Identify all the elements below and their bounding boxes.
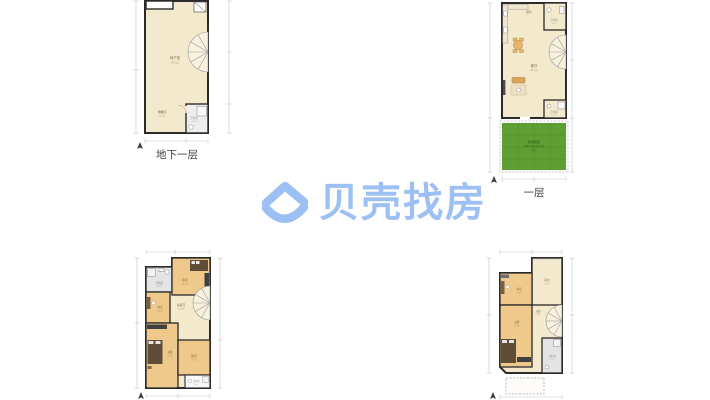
room-third-master	[500, 305, 532, 367]
room-label: 主卧	[514, 320, 520, 324]
room-first-bath-top	[544, 3, 566, 30]
north-compass-icon	[137, 142, 143, 149]
floorplan-third: 露台 9.6㎡ 书房 8.4㎡ 主卧 13.8㎡ 过道	[482, 245, 577, 400]
room-second-bath-top	[146, 267, 172, 292]
floorplan-second: 卫生间 4.6㎡ 卧室 10.7㎡ 书房 6.5㎡ 家庭厅 10.2㎡	[130, 245, 240, 400]
room-label: 主卧	[167, 350, 173, 354]
room-area: 40.1㎡	[530, 68, 538, 72]
room-label: 储藏间	[158, 110, 167, 114]
room-label: 厨房	[526, 10, 532, 14]
room-label: 卫生间	[155, 281, 163, 285]
balcony-dashed-outline	[506, 378, 544, 394]
beike-watermark: 贝壳找房	[258, 176, 487, 230]
room-label: 家庭厅	[177, 303, 186, 307]
beike-logo-icon	[258, 176, 312, 230]
north-compass-icon	[138, 392, 144, 399]
floorplan-basement: 地下室 57.0㎡ 储藏间 11.4㎡ 卫生间 5.3㎡ 地下一层	[128, 0, 238, 165]
room-label: 卫生间	[548, 354, 556, 358]
north-compass-icon	[491, 176, 497, 183]
garden-note: 具体以实际交付为准	[524, 144, 544, 148]
room-area: 57.0㎡	[171, 61, 179, 65]
room-label: 书房	[516, 287, 522, 291]
room-label: 卫生间	[193, 379, 200, 383]
room-label: 露台	[544, 278, 550, 282]
floorplan-sheet: 地下室 57.0㎡ 储藏间 11.4㎡ 卫生间 5.3㎡ 地下一层	[0, 0, 710, 400]
room-label: 地下室	[170, 55, 181, 60]
floorplan-first: 卫生间 4.2㎡ 厨房	[482, 0, 577, 200]
room-label: 客厅	[531, 63, 538, 68]
beike-logo-text: 贝壳找房	[319, 176, 487, 230]
garden-label: 私家花园	[528, 139, 540, 144]
floor-label-basement: 地下一层	[156, 148, 198, 161]
room-label: 卫生间	[550, 110, 558, 114]
garden-area: 35㎡	[532, 148, 538, 152]
room-label: 卫生间	[190, 116, 198, 120]
room-label: 卧室	[191, 354, 197, 358]
room-label: 卧室	[182, 278, 188, 282]
floor-label-first: 一层	[524, 187, 545, 199]
room-label: 书房	[157, 305, 163, 309]
room-label: 过道	[536, 309, 541, 313]
room-label: 卫生间	[550, 18, 558, 22]
garden: 私家花园 具体以实际交付为准 35㎡	[500, 121, 568, 172]
north-compass-icon	[490, 392, 496, 399]
